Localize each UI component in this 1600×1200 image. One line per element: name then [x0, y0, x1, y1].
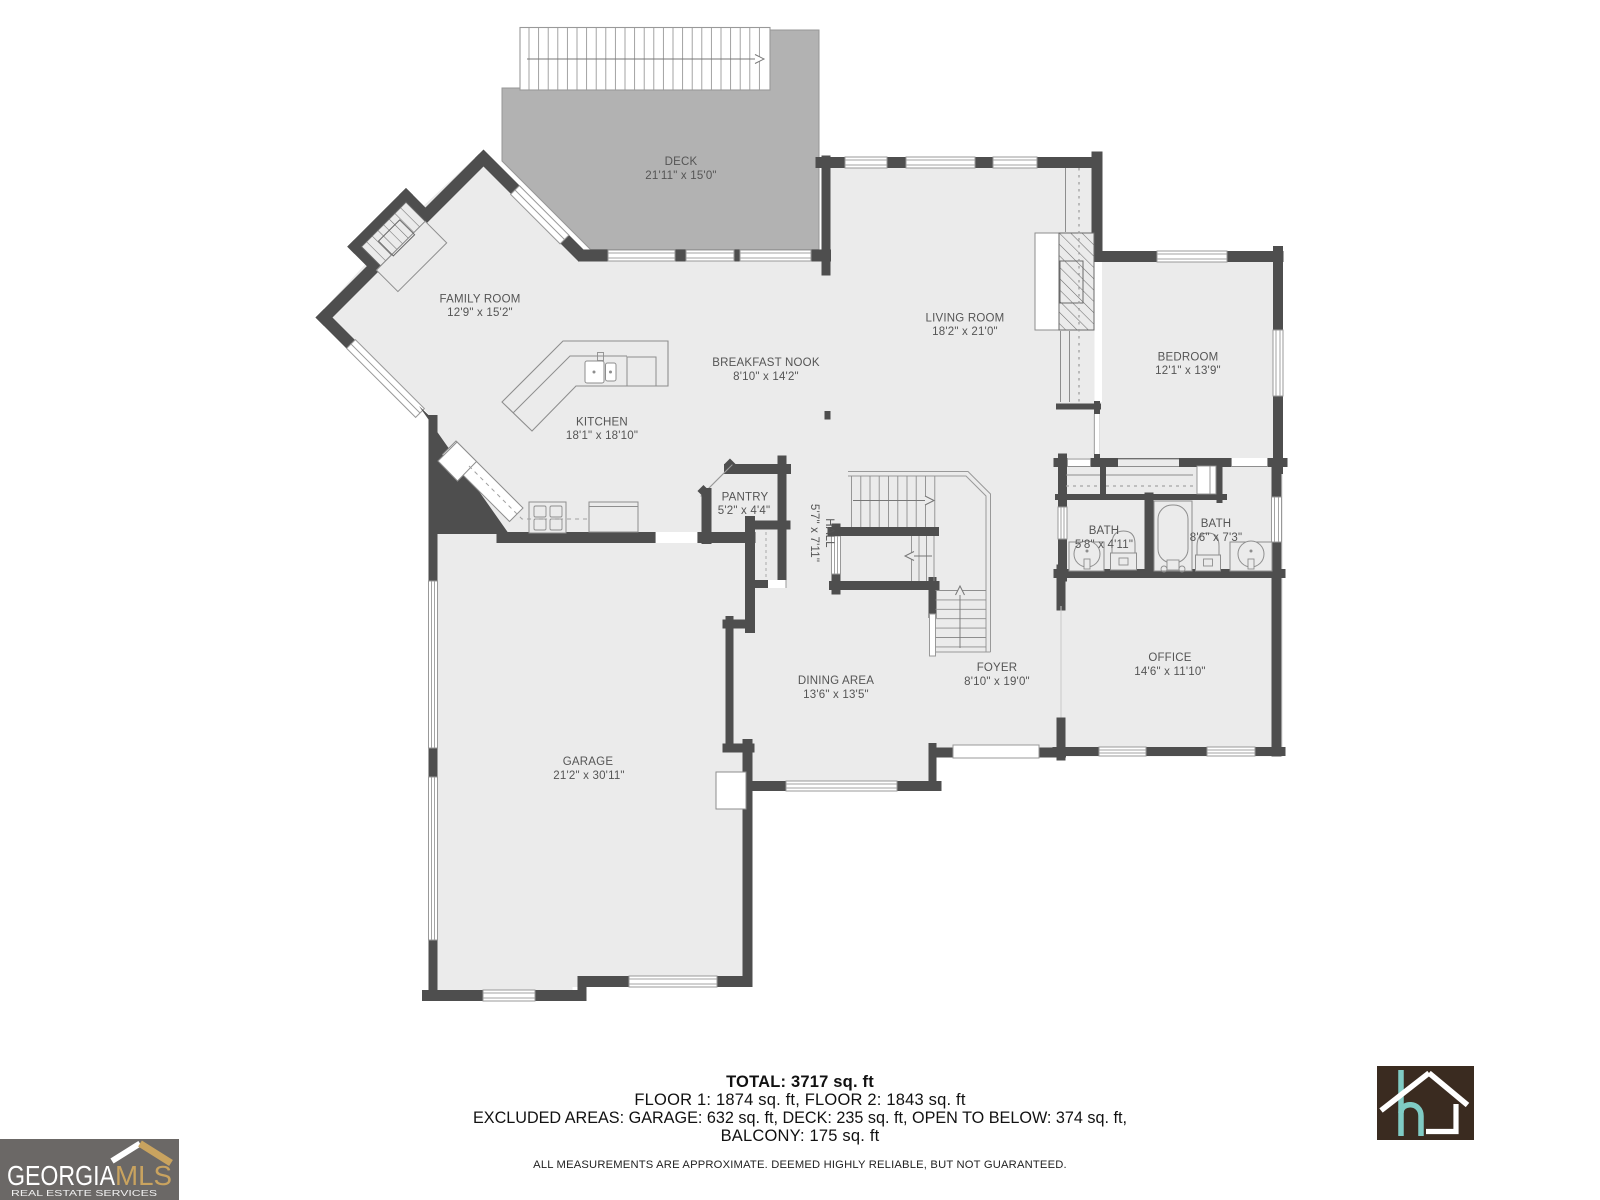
svg-text:GARAGE: GARAGE: [563, 756, 614, 768]
svg-text:MLS: MLS: [115, 1160, 172, 1191]
svg-text:GEORGIA: GEORGIA: [7, 1160, 116, 1191]
svg-text:DINING AREA: DINING AREA: [798, 675, 874, 687]
svg-text:BREAKFAST NOOK: BREAKFAST NOOK: [712, 357, 820, 369]
svg-text:DECK: DECK: [665, 156, 698, 168]
svg-text:BATH: BATH: [1089, 525, 1120, 537]
svg-text:REAL ESTATE SERVICES: REAL ESTATE SERVICES: [11, 1189, 157, 1198]
svg-text:FAMILY ROOM: FAMILY ROOM: [439, 294, 520, 306]
svg-text:BALCONY: 175 sq. ft: BALCONY: 175 sq. ft: [721, 1127, 880, 1145]
svg-text:FOYER: FOYER: [977, 662, 1018, 674]
svg-text:BEDROOM: BEDROOM: [1158, 352, 1219, 364]
svg-text:ALL MEASUREMENTS ARE APPROXIMA: ALL MEASUREMENTS ARE APPROXIMATE. DEEMED…: [533, 1159, 1067, 1171]
svg-text:BATH: BATH: [1201, 518, 1232, 530]
svg-text:14'6" x 11'10": 14'6" x 11'10": [1134, 666, 1205, 678]
svg-text:12'1" x 13'9": 12'1" x 13'9": [1155, 365, 1221, 377]
svg-text:PANTRY: PANTRY: [722, 492, 769, 504]
svg-text:12'9" x 15'2": 12'9" x 15'2": [447, 307, 513, 319]
svg-text:FLOOR 1: 1874 sq. ft, FLOOR 2:: FLOOR 1: 1874 sq. ft, FLOOR 2: 1843 sq. …: [634, 1091, 965, 1109]
svg-text:5'2" x 4'4": 5'2" x 4'4": [718, 505, 770, 517]
svg-text:EXCLUDED AREAS: GARAGE: 632 sq: EXCLUDED AREAS: GARAGE: 632 sq. ft, DECK…: [473, 1109, 1127, 1127]
svg-text:5'8" x 4'11": 5'8" x 4'11": [1075, 539, 1133, 551]
svg-text:8'10" x 14'2": 8'10" x 14'2": [733, 371, 799, 383]
svg-text:18'1" x 18'10": 18'1" x 18'10": [566, 430, 638, 442]
svg-text:8'10" x 19'0": 8'10" x 19'0": [964, 676, 1030, 688]
svg-text:13'6" x 13'5": 13'6" x 13'5": [803, 689, 869, 701]
svg-text:KITCHEN: KITCHEN: [576, 417, 628, 429]
svg-text:5'7" x 7'11": 5'7" x 7'11": [808, 504, 820, 562]
svg-text:21'2" x 30'11": 21'2" x 30'11": [553, 770, 624, 782]
svg-text:HALL: HALL: [823, 518, 835, 548]
svg-text:OFFICE: OFFICE: [1148, 652, 1191, 664]
svg-text:21'11" x 15'0": 21'11" x 15'0": [645, 170, 716, 182]
svg-text:8'6" x 7'3": 8'6" x 7'3": [1190, 532, 1242, 544]
svg-text:18'2" x 21'0": 18'2" x 21'0": [932, 326, 998, 338]
svg-text:TOTAL: 3717 sq. ft: TOTAL: 3717 sq. ft: [726, 1073, 874, 1091]
svg-text:LIVING ROOM: LIVING ROOM: [926, 313, 1005, 325]
